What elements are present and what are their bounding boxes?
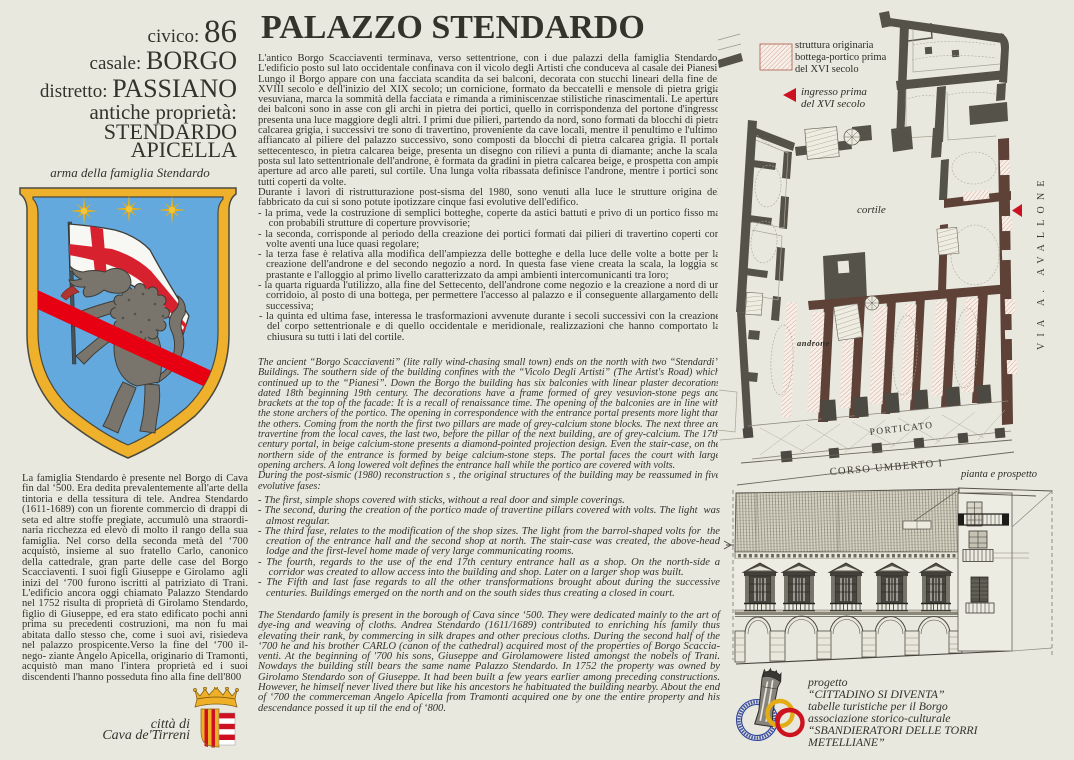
svg-text:del XVI secolo: del XVI secolo bbox=[801, 98, 866, 110]
svg-text:ingresso prima: ingresso prima bbox=[801, 86, 867, 98]
svg-text:cortile: cortile bbox=[857, 204, 886, 216]
svg-text:struttura originaria: struttura originaria bbox=[795, 40, 874, 51]
svg-text:VIA A. AVALLONE: VIA A. AVALLONE bbox=[1036, 174, 1047, 350]
svg-text:androne: androne bbox=[797, 338, 830, 348]
svg-text:del XVI secolo: del XVI secolo bbox=[795, 64, 859, 75]
svg-text:bottega-portico prima: bottega-portico prima bbox=[795, 52, 887, 63]
svg-text:pianta e prospetto: pianta e prospetto bbox=[960, 469, 1037, 480]
